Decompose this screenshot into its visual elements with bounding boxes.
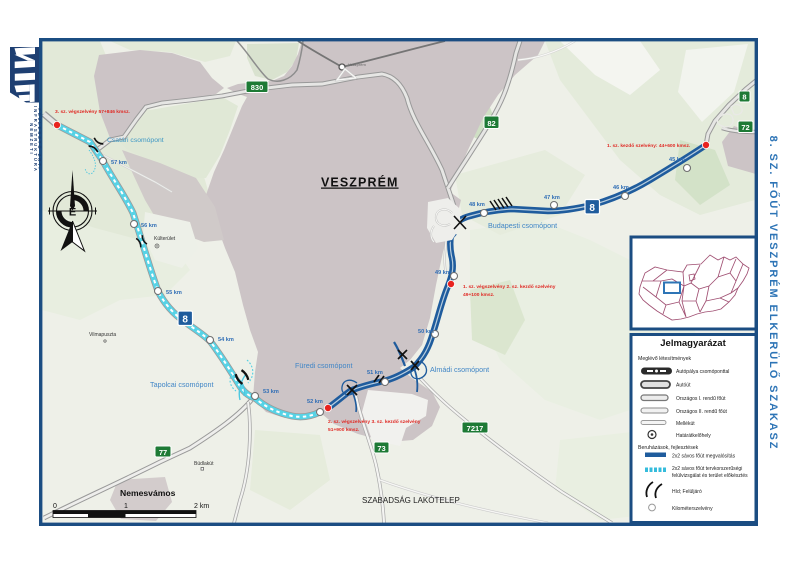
svg-text:0: 0	[53, 503, 57, 510]
svg-text:1: 1	[124, 503, 128, 510]
svg-text:Országos II. rendű főút: Országos II. rendű főút	[676, 409, 727, 415]
svg-text:52 km: 52 km	[307, 399, 323, 405]
svg-text:felülvizsgálat és terület elők: felülvizsgálat és terület előkésztés	[672, 473, 748, 479]
svg-text:Külterület: Külterület	[154, 236, 176, 242]
svg-text:NEMZETI: NEMZETI	[29, 123, 34, 155]
svg-text:1. sz. végszelvény 2. sz. kezd: 1. sz. végszelvény 2. sz. kezdő szelvény	[463, 284, 556, 290]
svg-text:Országos I. rendű főút: Országos I. rendű főút	[676, 396, 726, 402]
svg-text:7217: 7217	[467, 424, 484, 433]
svg-text:47 km: 47 km	[544, 195, 560, 201]
svg-text:8: 8	[182, 315, 188, 326]
svg-text:2. sz. végszelvény 3. sz. kezd: 2. sz. végszelvény 3. sz. kezdő szelvény	[328, 419, 421, 425]
svg-text:Veszprém: Veszprém	[348, 62, 366, 67]
svg-text:73: 73	[377, 444, 385, 453]
svg-text:Almádi csomópont: Almádi csomópont	[430, 365, 489, 374]
svg-text:49+100 kmsz.: 49+100 kmsz.	[463, 292, 495, 298]
svg-text:1. sz. kezdő szelvény: 44+600: 1. sz. kezdő szelvény: 44+600 kmsz.	[607, 143, 691, 149]
svg-text:45 km: 45 km	[669, 157, 685, 163]
svg-text:Budapesti csomópont: Budapesti csomópont	[488, 221, 557, 230]
svg-text:SZABADSÁG LAKÓTELEP: SZABADSÁG LAKÓTELEP	[362, 496, 460, 505]
svg-text:8. SZ. FŐÚT VESZPRÉM ELKERÜLŐ: 8. SZ. FŐÚT VESZPRÉM ELKERÜLŐ SZAKASZ	[767, 136, 780, 451]
svg-text:56 km: 56 km	[141, 223, 157, 229]
svg-text:50 km: 50 km	[418, 329, 434, 335]
svg-text:77: 77	[159, 448, 167, 457]
svg-text:Beruházások, fejlesztések: Beruházások, fejlesztések	[638, 445, 699, 451]
svg-text:Határátkelőhely: Határátkelőhely	[676, 433, 711, 439]
svg-text:51 km: 51 km	[367, 370, 383, 376]
svg-text:Csatári csomópont: Csatári csomópont	[107, 137, 164, 144]
svg-text:48 km: 48 km	[469, 202, 485, 208]
svg-text:Autópálya csomóponttal: Autópálya csomóponttal	[676, 369, 729, 375]
svg-text:3. sz. végszelvény 57+846 kmsz: 3. sz. végszelvény 57+846 kmsz.	[55, 109, 131, 115]
svg-text:Füredi csomópont: Füredi csomópont	[295, 361, 353, 370]
svg-text:Mellékút: Mellékút	[676, 421, 695, 427]
svg-text:82: 82	[487, 119, 495, 128]
svg-text:54 km: 54 km	[218, 337, 234, 343]
svg-text:53 km: 53 km	[263, 389, 279, 395]
svg-text:Büdlakút: Büdlakút	[194, 461, 214, 467]
svg-text:55 km: 55 km	[166, 290, 182, 296]
svg-text:57 km: 57 km	[111, 160, 127, 166]
svg-text:8: 8	[742, 93, 746, 102]
svg-text:49 km: 49 km	[435, 270, 451, 276]
svg-text:830: 830	[251, 83, 264, 92]
svg-text:Autóút: Autóút	[676, 383, 691, 389]
svg-text:46 km: 46 km	[613, 185, 629, 191]
svg-text:VESZPRÉM: VESZPRÉM	[321, 175, 399, 190]
svg-text:8: 8	[589, 203, 595, 214]
svg-text:Tapolcai csomópont: Tapolcai csomópont	[150, 380, 214, 389]
svg-text:72: 72	[741, 123, 749, 132]
svg-text:2 km: 2 km	[194, 503, 209, 510]
svg-text:2x2 sávos főút tervkorszerűség: 2x2 sávos főút tervkorszerűségi	[672, 466, 742, 472]
svg-text:51+900 kmsz.: 51+900 kmsz.	[328, 427, 360, 433]
svg-text:Híd; Felüljáró: Híd; Felüljáró	[672, 489, 702, 495]
svg-text:Vilmapuszta: Vilmapuszta	[89, 332, 116, 338]
svg-text:Jelmagyarázat: Jelmagyarázat	[660, 338, 726, 349]
svg-text:2x2 sávos főút megvalósítás: 2x2 sávos főút megvalósítás	[672, 454, 736, 460]
svg-text:Nemesvámos: Nemesvámos	[120, 488, 176, 498]
svg-text:Kilométerszelvény: Kilométerszelvény	[672, 506, 713, 512]
svg-text:Meglévő létesítmények: Meglévő létesítmények	[638, 356, 691, 362]
svg-text:É: É	[69, 206, 76, 219]
